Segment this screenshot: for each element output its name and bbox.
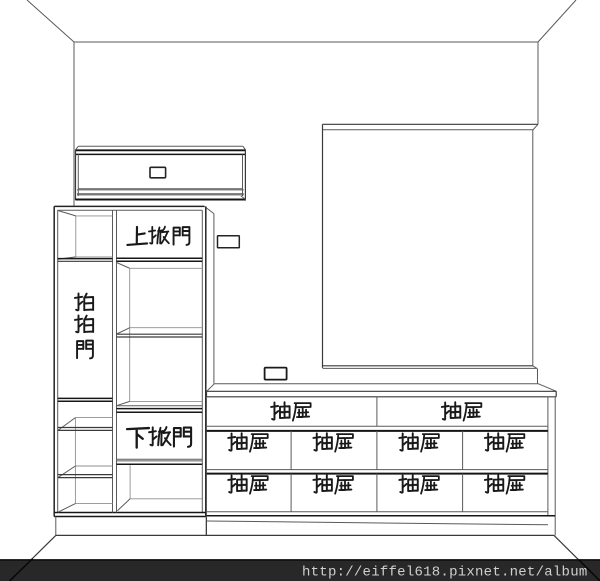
svg-text:http://eiffel618.pixnet.net/al: http://eiffel618.pixnet.net/album [302, 565, 588, 581]
